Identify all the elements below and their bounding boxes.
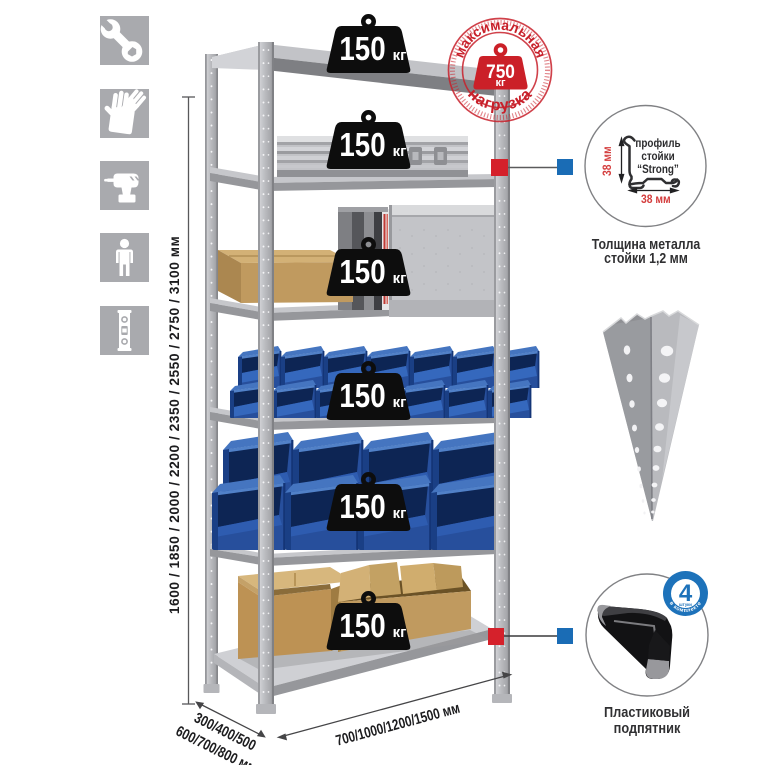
svg-text:150: 150 [339,608,385,645]
svg-text:38 мм: 38 мм [602,146,615,176]
svg-text:1600 / 1850 / 2000 / 2200 / 23: 1600 / 1850 / 2000 / 2200 / 2350 / 2550 … [167,236,182,614]
svg-text:150: 150 [339,489,385,526]
svg-text:стойки 1,2 мм: стойки 1,2 мм [604,250,688,266]
svg-text:кг: кг [393,624,407,641]
svg-text:кг: кг [393,394,407,411]
svg-text:штуки: штуки [679,602,692,607]
svg-text:150: 150 [339,31,385,68]
svg-text:Пластиковый: Пластиковый [604,703,690,720]
svg-text:150: 150 [339,378,385,415]
svg-text:150: 150 [339,127,385,164]
svg-text:150: 150 [339,254,385,291]
svg-text:38 мм: 38 мм [641,194,671,207]
svg-text:стойки: стойки [641,150,674,163]
svg-text:кг: кг [393,47,407,64]
svg-text:700/1000/1200/1500 мм: 700/1000/1200/1500 мм [334,699,462,749]
svg-text:профиль: профиль [635,137,681,150]
svg-text:“Strong”: “Strong” [637,163,679,176]
svg-text:кг: кг [495,77,506,89]
svg-text:кг: кг [393,505,407,522]
svg-text:кг: кг [393,270,407,287]
svg-text:подпятник: подпятник [614,719,681,736]
svg-text:кг: кг [393,143,407,160]
